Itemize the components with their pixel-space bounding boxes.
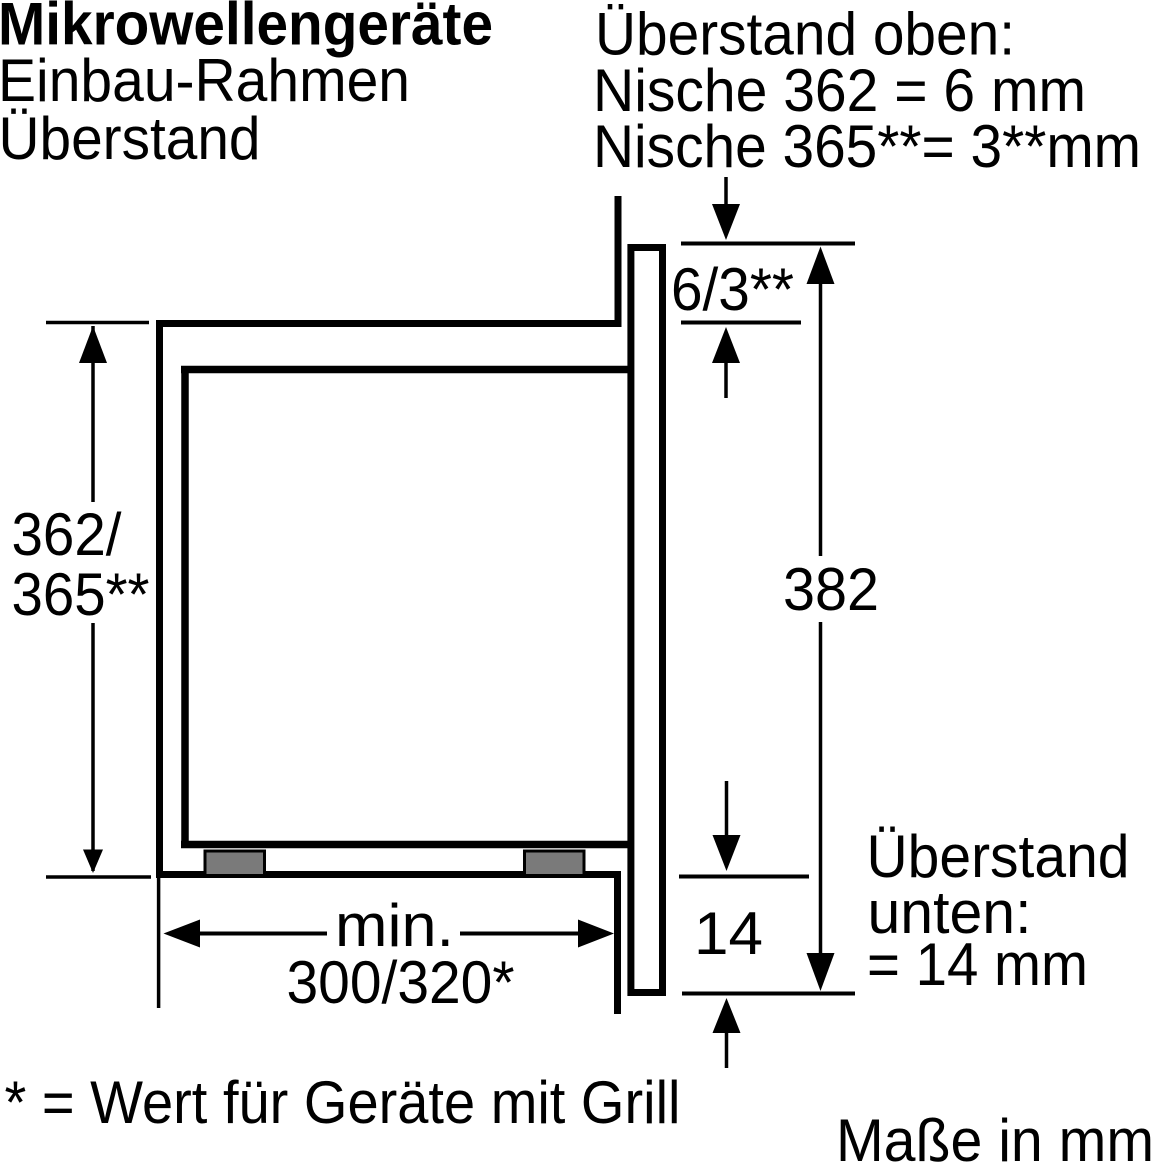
svg-text:Nische 365**= 3**mm: Nische 365**= 3**mm bbox=[593, 113, 1141, 180]
svg-text:Überstand: Überstand bbox=[0, 105, 261, 172]
svg-text:382: 382 bbox=[783, 556, 879, 623]
svg-text:6/3**: 6/3** bbox=[671, 256, 794, 323]
svg-text:14: 14 bbox=[694, 900, 763, 967]
svg-text:Maße in mm: Maße in mm bbox=[836, 1107, 1154, 1164]
svg-text:365**: 365** bbox=[12, 561, 150, 628]
svg-text:= 14 mm: = 14 mm bbox=[867, 931, 1088, 998]
svg-text:362/: 362/ bbox=[12, 501, 122, 568]
svg-text:300/320*: 300/320* bbox=[287, 949, 515, 1016]
svg-text:Einbau-Rahmen: Einbau-Rahmen bbox=[0, 47, 410, 114]
svg-text:* = Wert für Geräte mit Grill: * = Wert für Geräte mit Grill bbox=[5, 1069, 681, 1136]
